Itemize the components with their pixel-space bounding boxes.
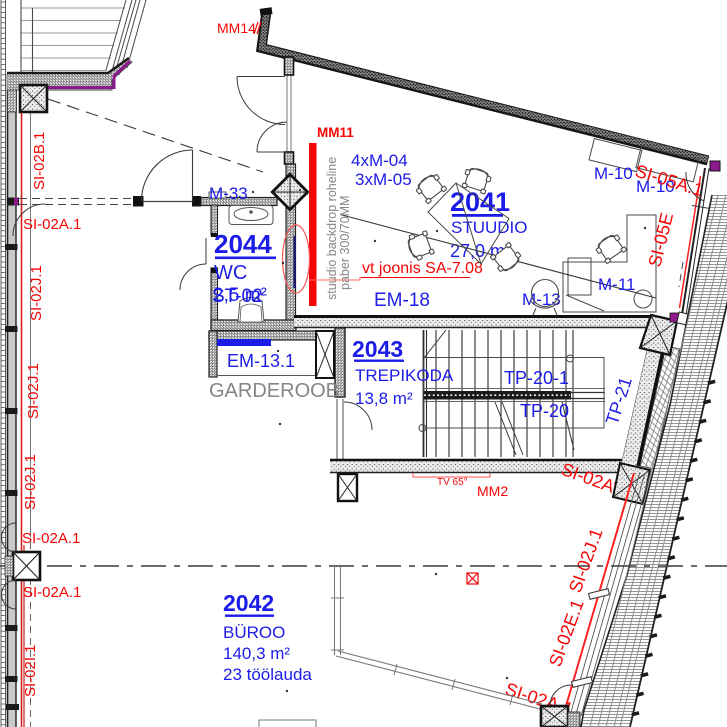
svg-text:SI-02J.1: SI-02J.1 [25, 363, 42, 419]
svg-text:TV 65°: TV 65° [437, 477, 468, 488]
svg-text:M-33: M-33 [209, 184, 248, 203]
svg-text:BÜROO: BÜROO [223, 623, 285, 642]
svg-text:GARDEROOB: GARDEROOB [209, 380, 339, 402]
svg-text:140,3 m²: 140,3 m² [223, 644, 290, 663]
svg-text:TREPIKODA: TREPIKODA [355, 366, 454, 385]
svg-text:MM2: MM2 [477, 483, 508, 499]
svg-text:2044: 2044 [214, 229, 272, 259]
svg-text:2042: 2042 [223, 590, 274, 616]
svg-text:paber 300/70MM: paber 300/70MM [338, 195, 352, 290]
svg-text:SI-02A.1: SI-02A.1 [23, 584, 81, 601]
svg-text:M-10: M-10 [594, 164, 633, 183]
svg-text:MM14: MM14 [217, 20, 256, 36]
svg-text:2043: 2043 [352, 336, 403, 362]
svg-text:vt joonis SA-7.08: vt joonis SA-7.08 [362, 260, 483, 277]
svg-text:M-11: M-11 [598, 275, 635, 294]
svg-text:SI-02A.1: SI-02A.1 [22, 530, 80, 547]
svg-text:SI-02I.1: SI-02I.1 [22, 644, 39, 697]
svg-text:EM-13.1: EM-13.1 [227, 351, 295, 371]
svg-text:23 töölauda: 23 töölauda [223, 665, 312, 684]
svg-text:SI-02B.1: SI-02B.1 [31, 132, 48, 190]
svg-text:TP-20: TP-20 [520, 401, 569, 421]
svg-text:ST-02: ST-02 [212, 286, 263, 307]
svg-text:SI-02J.1: SI-02J.1 [22, 454, 39, 510]
svg-text:3xM-05: 3xM-05 [355, 170, 412, 189]
svg-text:13,8 m²: 13,8 m² [355, 389, 413, 408]
svg-text:MM11: MM11 [317, 125, 354, 140]
svg-text:4xM-04: 4xM-04 [351, 151, 408, 170]
svg-text:SI-02J.1: SI-02J.1 [28, 265, 45, 321]
svg-text:WC: WC [214, 262, 247, 284]
svg-text:TP-20-1: TP-20-1 [504, 368, 569, 388]
svg-text:EM-18: EM-18 [374, 290, 430, 311]
svg-text:STUUDIO: STUUDIO [451, 218, 528, 237]
svg-text:stuudio backdrop roheline: stuudio backdrop roheline [325, 157, 339, 300]
svg-text:SI-02A.1: SI-02A.1 [23, 216, 81, 233]
